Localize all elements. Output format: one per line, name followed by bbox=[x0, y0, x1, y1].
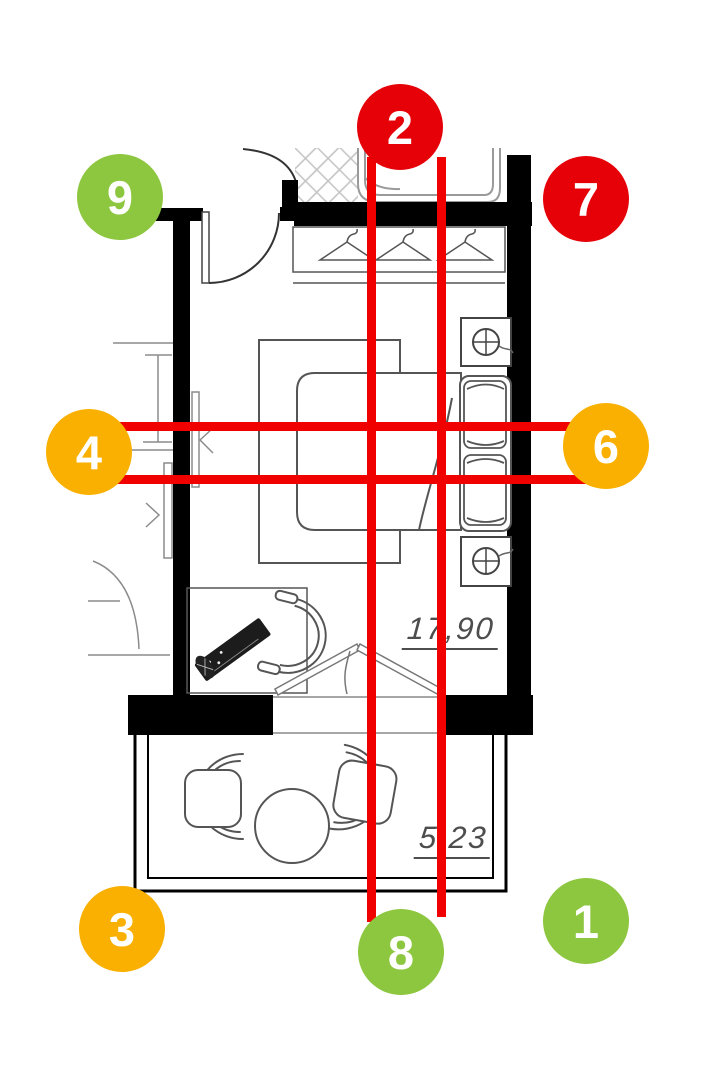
hallway-details bbox=[88, 343, 213, 655]
balcony-chair-right bbox=[329, 745, 401, 839]
annotation-line bbox=[100, 475, 600, 484]
annotated-floor-plan: 17,90 5,23 12346789 bbox=[0, 0, 707, 1090]
entrance-door bbox=[202, 212, 279, 283]
balcony-door bbox=[273, 644, 442, 733]
marker-2[interactable]: 2 bbox=[357, 84, 443, 170]
annotation-line bbox=[367, 157, 376, 922]
tile-hatch bbox=[295, 148, 358, 203]
balcony-chair-left bbox=[185, 754, 243, 839]
marker-3[interactable]: 3 bbox=[79, 886, 165, 972]
annotation-line bbox=[437, 157, 446, 917]
nightstand-upper bbox=[461, 318, 513, 366]
marker-6[interactable]: 6 bbox=[563, 403, 649, 489]
room-area-label: 17,90 bbox=[402, 611, 500, 650]
marker-9[interactable]: 9 bbox=[77, 154, 163, 240]
marker-7[interactable]: 7 bbox=[543, 156, 629, 242]
wardrobe bbox=[293, 227, 505, 283]
bed bbox=[259, 340, 511, 563]
marker-4[interactable]: 4 bbox=[46, 409, 132, 495]
hanger-icon bbox=[376, 229, 430, 260]
upper-door-arc bbox=[243, 149, 296, 182]
marker-1[interactable]: 1 bbox=[543, 878, 629, 964]
annotation-line bbox=[100, 422, 600, 431]
marker-8[interactable]: 8 bbox=[358, 909, 444, 995]
nightstand-lower bbox=[461, 537, 513, 586]
balcony-table bbox=[255, 789, 329, 863]
hanger-icon bbox=[320, 229, 374, 260]
desk bbox=[187, 588, 307, 693]
hanger-icon bbox=[438, 229, 492, 260]
balcony-area-label: 5,23 bbox=[414, 820, 493, 859]
